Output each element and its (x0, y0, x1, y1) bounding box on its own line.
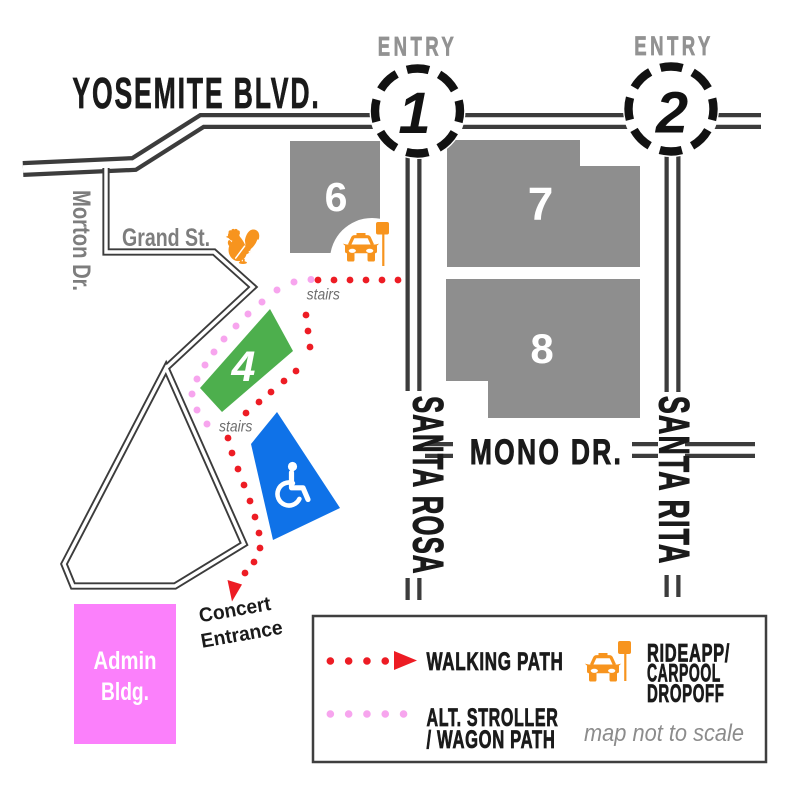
svg-text:SANTA ROSA: SANTA ROSA (404, 396, 453, 575)
svg-text:WALKING PATH: WALKING PATH (427, 648, 564, 676)
svg-text:DROPOFF: DROPOFF (647, 680, 725, 708)
svg-text:8: 8 (530, 325, 553, 372)
svg-text:ENTRY: ENTRY (634, 31, 713, 61)
svg-text:ENTRY: ENTRY (378, 31, 457, 61)
svg-text:6: 6 (325, 174, 348, 220)
svg-text:YOSEMITE BLVD.: YOSEMITE BLVD. (72, 68, 320, 118)
svg-text:stairs: stairs (219, 419, 253, 436)
svg-text:/ WAGON PATH: / WAGON PATH (427, 727, 556, 754)
svg-text:2: 2 (655, 81, 688, 146)
svg-text:SANTA RITA: SANTA RITA (650, 396, 698, 565)
svg-text:7: 7 (528, 178, 554, 230)
svg-text:MONO DR.: MONO DR. (470, 432, 623, 471)
svg-text:Admin: Admin (94, 646, 157, 675)
svg-text:stairs: stairs (307, 287, 341, 304)
svg-text:map not to scale: map not to scale (584, 719, 744, 746)
svg-text:4: 4 (231, 343, 256, 391)
svg-text:Bldg.: Bldg. (101, 678, 149, 706)
svg-text:Morton Dr.: Morton Dr. (68, 190, 97, 291)
svg-text:Grand St.: Grand St. (122, 224, 210, 252)
svg-text:1: 1 (398, 81, 430, 146)
